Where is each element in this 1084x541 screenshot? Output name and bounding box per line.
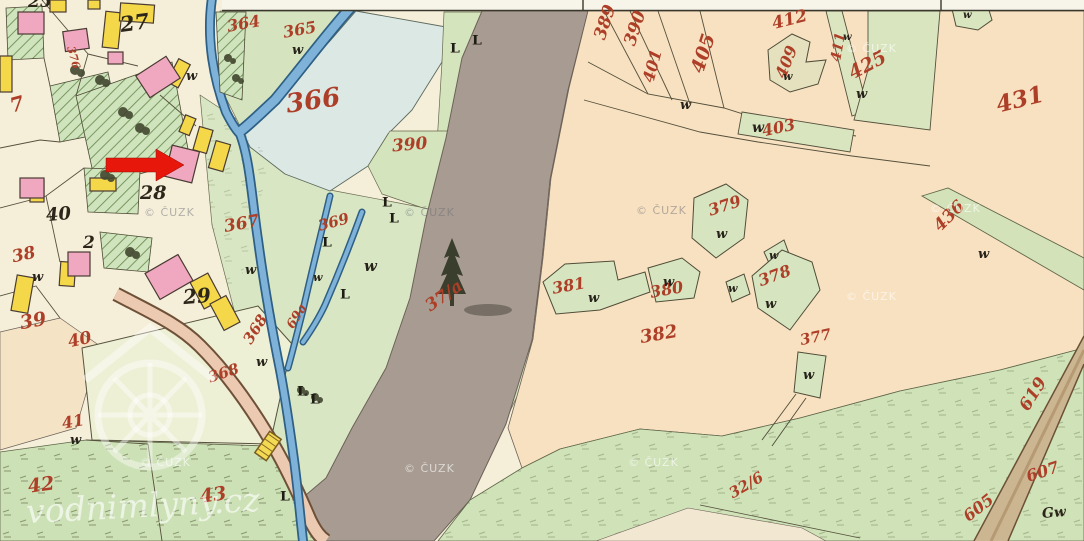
watermill-logo-watermark bbox=[30, 320, 290, 520]
sheet-margin bbox=[222, 0, 1084, 11]
map-canvas[interactable]: 25 27 28 29 40 2 Gw 7 376 364 365 366 39… bbox=[0, 0, 1084, 541]
